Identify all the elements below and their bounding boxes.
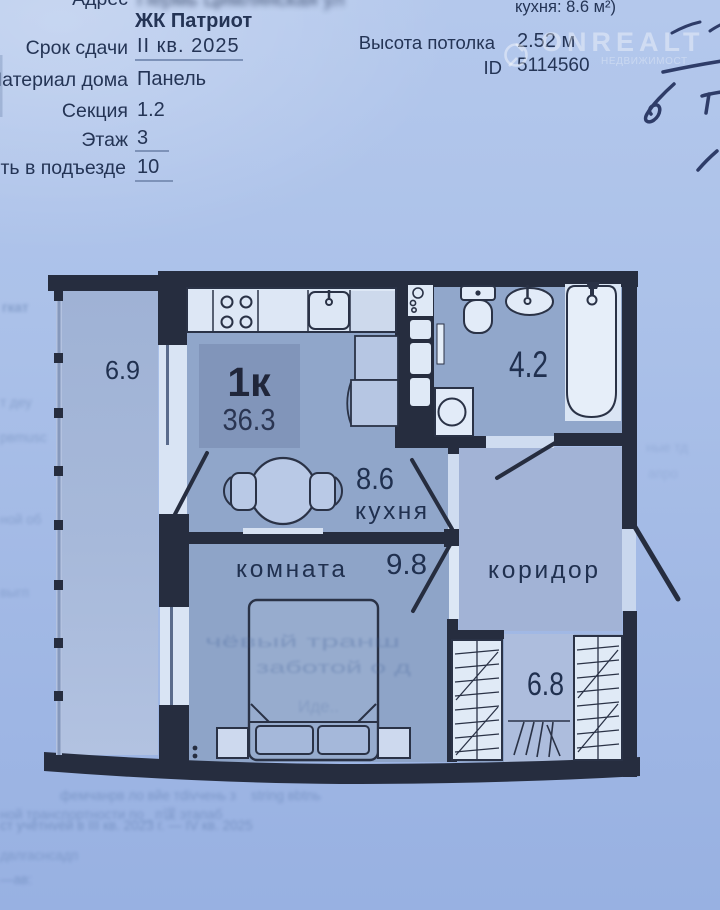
svg-text:коридор: коридор [488, 557, 598, 584]
svg-text:6.8: 6.8 [527, 666, 564, 702]
svg-text:8.6: 8.6 [356, 461, 394, 496]
svg-text:4.2: 4.2 [509, 344, 548, 385]
svg-text:заботой о д: заботой о д [256, 658, 411, 677]
svg-text:кухня: кухня [355, 498, 427, 525]
svg-text:6.9: 6.9 [105, 355, 140, 385]
svg-text:9.8: 9.8 [386, 549, 427, 581]
svg-text:Иде..: Иде.. [298, 697, 339, 716]
svg-text:чёвый транш: чёвый транш [205, 632, 400, 651]
svg-text:36.3: 36.3 [223, 402, 276, 437]
svg-text:1к: 1к [227, 359, 271, 405]
